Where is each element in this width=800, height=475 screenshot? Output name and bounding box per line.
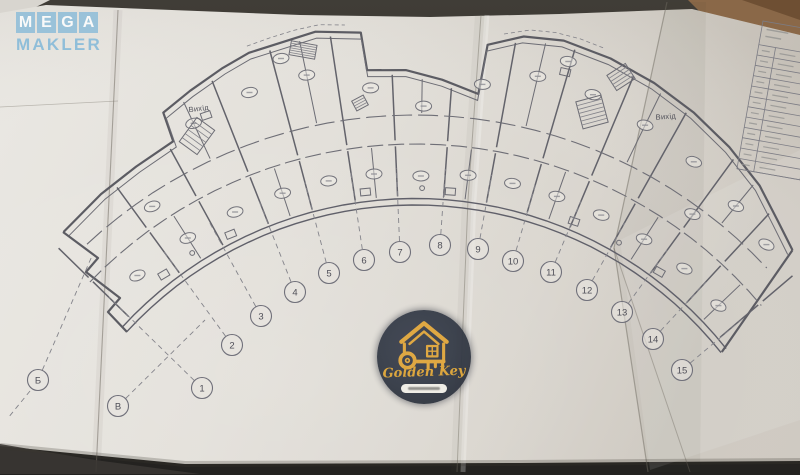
room-label-smudge xyxy=(535,76,541,77)
mega-letter-boxes: M E G A xyxy=(16,12,102,33)
golden-key-tagline-pill xyxy=(401,384,447,393)
mega-letter-g: G xyxy=(58,12,77,33)
axis-marker-7: 7 xyxy=(397,247,402,258)
mega-letter-e: E xyxy=(37,12,56,33)
room-label-smudge xyxy=(763,244,769,245)
axis-marker-6: 6 xyxy=(361,255,366,266)
axis-marker-1: 1 xyxy=(199,383,204,394)
axis-marker-15: 15 xyxy=(677,365,688,376)
axis-marker-12: 12 xyxy=(582,285,593,296)
makler-wordmark: MAKLER xyxy=(16,36,102,53)
room-label-smudge xyxy=(278,58,284,59)
room-label-smudge xyxy=(598,214,604,215)
room-label-smudge xyxy=(247,92,253,93)
axis-marker-Б: Б xyxy=(35,375,41,386)
room-label-smudge xyxy=(510,183,516,184)
room-label-smudge xyxy=(304,74,310,75)
room-label-smudge xyxy=(421,105,427,106)
room-label-smudge xyxy=(326,180,332,181)
room-label-smudge xyxy=(149,206,155,207)
axis-marker-9: 9 xyxy=(475,244,480,255)
room-label-smudge xyxy=(642,125,648,126)
axis-marker-3: 3 xyxy=(258,311,263,322)
room-label-smudge xyxy=(479,84,485,85)
room-label-smudge xyxy=(185,237,191,238)
room-label-smudge xyxy=(641,239,647,240)
room-label-smudge xyxy=(554,196,560,197)
room-label-smudge xyxy=(733,205,739,206)
mega-makler-watermark: M E G A MAKLER xyxy=(16,12,102,53)
axis-marker-В: В xyxy=(115,401,121,412)
room-label-smudge xyxy=(418,175,424,176)
golden-key-tagline-smudge xyxy=(408,387,440,390)
room-label-smudge xyxy=(368,87,374,88)
axis-marker-14: 14 xyxy=(648,334,659,345)
room-label-smudge xyxy=(565,61,571,62)
room-label-smudge xyxy=(232,211,238,212)
mega-letter-a: A xyxy=(79,12,98,33)
room-label-smudge xyxy=(715,305,721,306)
floorplan-photo-scene: Вихід Вихід БВ123456789101112131415 M E … xyxy=(0,0,800,475)
room-label-smudge xyxy=(590,94,596,95)
axis-marker-11: 11 xyxy=(546,267,556,278)
axis-marker-8: 8 xyxy=(437,240,442,251)
room-label-smudge xyxy=(681,268,687,269)
axis-marker-13: 13 xyxy=(617,307,628,318)
exit-label-right: Вихід xyxy=(655,111,676,121)
mega-letter-m: M xyxy=(16,12,35,33)
axis-marker-2: 2 xyxy=(229,340,234,351)
room-label-smudge xyxy=(134,275,140,276)
golden-key-watermark: Golden Key xyxy=(377,310,471,404)
room-label-smudge xyxy=(371,173,377,174)
room-label-smudge xyxy=(691,161,697,162)
room-label-smudge xyxy=(689,213,695,214)
axis-marker-4: 4 xyxy=(292,287,297,298)
axis-marker-10: 10 xyxy=(508,256,519,267)
axis-marker-5: 5 xyxy=(326,268,331,279)
room-label-smudge xyxy=(465,175,471,176)
room-label-smudge xyxy=(280,193,286,194)
